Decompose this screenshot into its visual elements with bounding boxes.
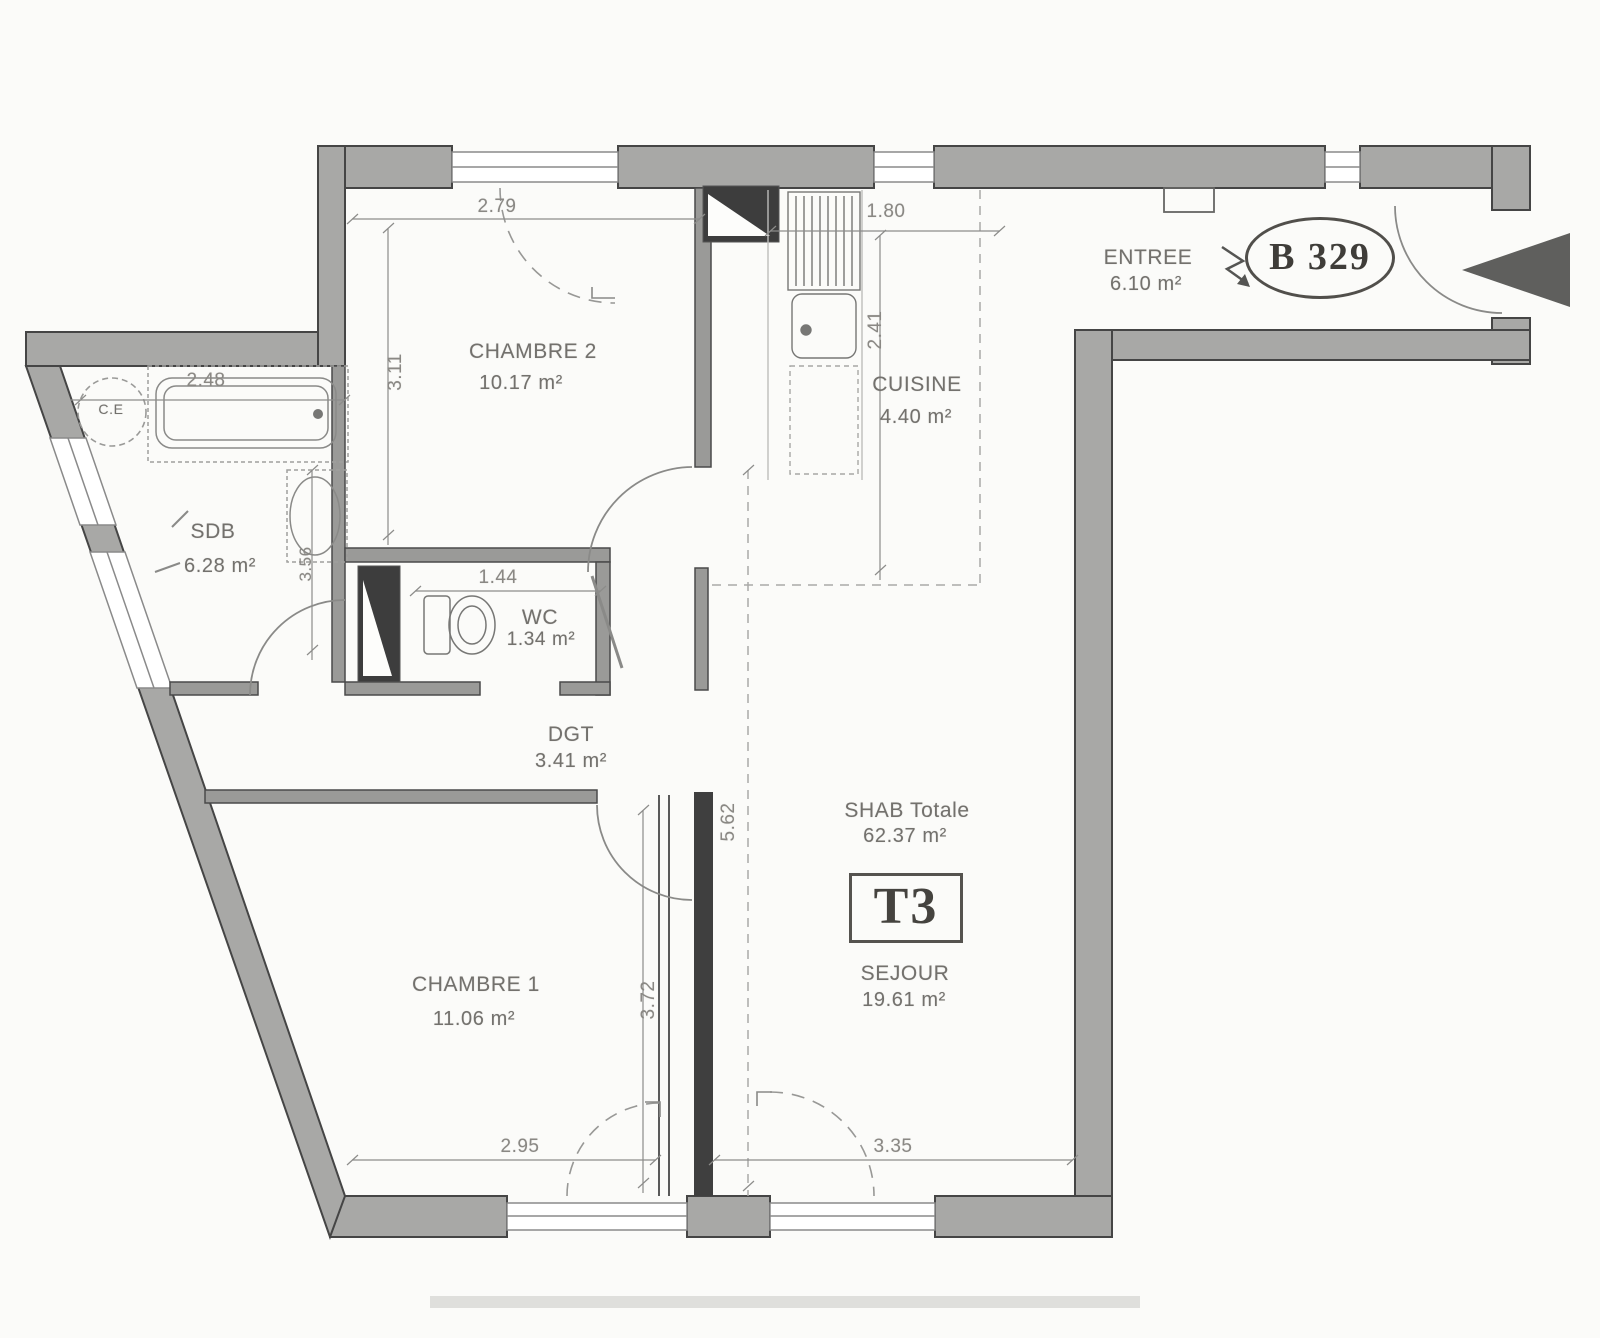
unit-number-badge: B 329: [1245, 217, 1395, 299]
room-label-sejour: SEJOUR: [805, 962, 1005, 986]
wall-sejour-chambre1-thick: [694, 792, 713, 1196]
floor-plan: CHAMBRE 2 10.17 m² CUISINE 4.40 m² ENTRE…: [0, 0, 1600, 1338]
apartment-type-text: T3: [874, 878, 939, 935]
room-label-entree: ENTREE: [1048, 246, 1248, 270]
dim-wc-width: 1.44: [448, 567, 548, 589]
dim-sejour-width: 3.35: [843, 1136, 943, 1158]
room-label-chambre1: CHAMBRE 1: [376, 973, 576, 997]
wall-chambre1-thin: [659, 795, 669, 1196]
dim-cuisine-height: 2.41: [865, 280, 887, 380]
room-area-dgt: 3.41 m²: [471, 750, 671, 773]
room-area-sdb: 6.28 m²: [120, 555, 320, 578]
room-area-chambre2: 10.17 m²: [421, 372, 621, 395]
room-area-entree: 6.10 m²: [1046, 273, 1246, 296]
room-area-wc: 1.34 m²: [441, 629, 641, 651]
room-area-sejour: 19.61 m²: [804, 989, 1004, 1012]
apartment-type-badge: T3: [849, 873, 963, 943]
shab-total-area: 62.37 m²: [805, 825, 1005, 848]
water-heater-label: C.E: [61, 401, 161, 417]
dim-sdb-height: 3.56: [296, 514, 316, 614]
interior-walls: [170, 188, 711, 803]
room-label-sdb: SDB: [113, 520, 313, 544]
room-area-chambre1: 11.06 m²: [374, 1008, 574, 1031]
room-label-chambre2: CHAMBRE 2: [433, 340, 633, 364]
dim-chambre2-height: 3.11: [385, 322, 407, 422]
unit-number-text: B 329: [1269, 236, 1371, 278]
zone-boundaries: [712, 190, 980, 1196]
dim-sdb-width: 2.48: [156, 370, 256, 392]
scan-artifact: [430, 1296, 1140, 1308]
electrical-panel-icon: [1164, 188, 1214, 212]
room-label-wc: WC: [440, 606, 640, 630]
floor-plan-drawing: [0, 0, 1600, 1338]
dim-sejour-height: 5.62: [718, 772, 740, 872]
dim-chambre1-width: 2.95: [470, 1136, 570, 1158]
window-leaf-brackets: [592, 287, 772, 1117]
shab-total-label: SHAB Totale: [807, 799, 1007, 823]
room-area-cuisine: 4.40 m²: [816, 406, 1016, 429]
dim-chambre1-height: 3.72: [638, 950, 660, 1050]
room-label-dgt: DGT: [471, 723, 671, 747]
dim-chambre2-width: 2.79: [447, 196, 547, 218]
kitchen-unit-icon: [768, 190, 862, 480]
room-label-cuisine: CUISINE: [817, 373, 1017, 397]
entrance-arrow-icon: [1462, 233, 1570, 307]
dim-cuisine-width: 1.80: [836, 201, 936, 223]
